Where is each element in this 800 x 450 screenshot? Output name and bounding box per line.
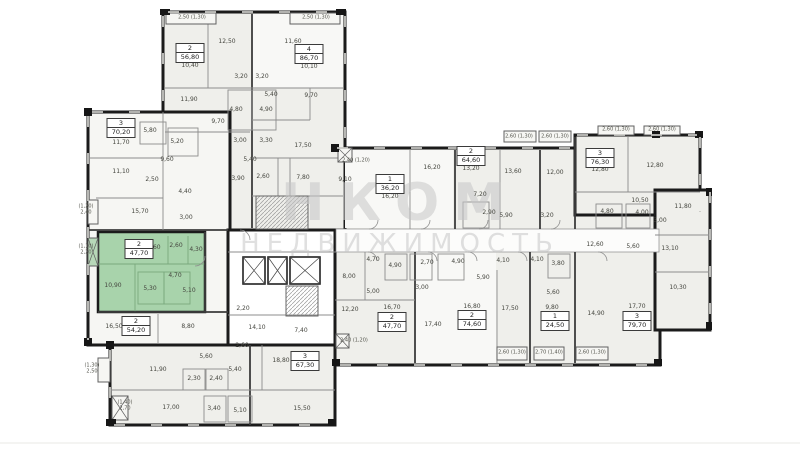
apartment-label[interactable]: 376,30 — [586, 148, 615, 168]
room-area-label: 4,90 — [451, 259, 464, 265]
room-area-label: 5,00 — [366, 289, 379, 295]
room-area-label: 11,90 — [149, 367, 166, 373]
apartment-rooms-count: 2 — [126, 240, 153, 249]
apartment-label[interactable]: 136,20 — [376, 174, 405, 194]
balcony-area-label: (1,20) 2,40 — [78, 205, 93, 216]
apartment-rooms-count: 1 — [377, 175, 404, 184]
room-area-label: 4,90 — [259, 107, 272, 113]
room-area-label: 5,90 — [499, 213, 512, 219]
room-area-label: 5,40 — [264, 92, 277, 98]
room-area-label: 10,10 — [300, 64, 317, 70]
room-area-label: 16,20 — [381, 194, 398, 200]
room-area-label: 5,30 — [143, 286, 156, 292]
room-area-label: 4,90 — [388, 263, 401, 269]
room-area-label: 13,60 — [504, 169, 521, 175]
balcony-area-label: (1,30) 2,50 — [84, 364, 99, 375]
room-area-label: 5,60 — [626, 244, 639, 250]
room-area-label: 2,90 — [482, 210, 495, 216]
room-area-label: 9,60 — [160, 157, 173, 163]
room-area-label: 10,90 — [104, 283, 121, 289]
floor-plan: НКОМ НЕДВИЖИМОСТЬ 12,5011,6010,4010,103,… — [0, 0, 800, 450]
apartment-label[interactable]: 367,30 — [291, 351, 320, 371]
apartment-total-area: 54,20 — [123, 326, 150, 335]
room-area-label: 15,50 — [293, 406, 310, 412]
room-area-label: 11,80 — [674, 204, 691, 210]
apartment-label[interactable]: 264,60 — [457, 146, 486, 166]
room-area-label: 3,00 — [179, 215, 192, 221]
balcony-area-label: 2,60 (1,30) — [498, 350, 526, 356]
balcony-area-label: 2,70 (1,40) — [535, 350, 563, 356]
apartment-total-area: 67,30 — [292, 361, 319, 370]
room-area-label: 8,80 — [181, 324, 194, 330]
room-area-label: 7,20 — [473, 192, 486, 198]
room-area-label: 12,60 — [586, 242, 603, 248]
room-area-label: 12,50 — [218, 39, 235, 45]
room-area-label: 5,60 — [199, 354, 212, 360]
balcony-area-label: 2,50 (1,30) — [178, 15, 206, 21]
apartment-label[interactable]: 274,60 — [458, 310, 487, 330]
apartment-total-area: 24,50 — [542, 321, 569, 330]
apartment-rooms-count: 3 — [108, 119, 135, 128]
apartment-total-area: 36,20 — [377, 184, 404, 193]
apartment-rooms-count: 2 — [458, 147, 485, 156]
apartment-total-area: 47,70 — [126, 249, 153, 258]
room-area-label: 2,60 — [169, 243, 182, 249]
room-area-label: 2,40 — [209, 376, 222, 382]
room-area-label: 15,70 — [131, 209, 148, 215]
room-area-label: 3,00 — [653, 218, 666, 224]
room-area-label: 17,00 — [162, 405, 179, 411]
apartment-total-area: 74,60 — [459, 320, 486, 329]
room-area-label: 2,60 — [235, 343, 248, 349]
room-area-label: 5,20 — [170, 139, 183, 145]
room-area-label: 2,50 — [145, 177, 158, 183]
room-area-label: 4,10 — [496, 258, 509, 264]
apartment-total-area: 56,80 — [177, 53, 204, 62]
room-area-label: 17,50 — [501, 306, 518, 312]
balcony-area-label: 2,50 (1,30) — [302, 15, 330, 21]
apartment-label[interactable]: 254,20 — [122, 316, 151, 336]
room-area-label: 2,20 — [236, 306, 249, 312]
apartment-label[interactable]: 247,70 — [378, 312, 407, 332]
apartment-total-area: 76,30 — [587, 158, 614, 167]
room-area-label: 2,70 — [420, 260, 433, 266]
room-area-label: 10,30 — [669, 285, 686, 291]
balcony-area-label: 2,60 (1,30) — [541, 134, 569, 140]
room-area-label: 11,10 — [112, 169, 129, 175]
balcony-area-label: 2,60 (1,30) — [505, 134, 533, 140]
apartment-label[interactable]: 379,70 — [623, 311, 652, 331]
room-area-label: 5,40 — [228, 367, 241, 373]
balcony-area-label: 2,40 (1,20) — [340, 338, 368, 344]
labels-layer: 12,5011,6010,4010,103,203,2011,904,804,9… — [0, 0, 800, 450]
room-area-label: 4,80 — [229, 107, 242, 113]
room-area-label: 4,70 — [168, 273, 181, 279]
apartment-label[interactable]: 247,70 — [125, 239, 154, 259]
apartment-rooms-count: 2 — [177, 44, 204, 53]
room-area-label: 10,40 — [181, 63, 198, 69]
balcony-area-label: 2,60 (1,30) — [578, 350, 606, 356]
apartment-rooms-count: 2 — [379, 313, 406, 322]
room-area-label: 4,00 — [635, 210, 648, 216]
room-area-label: 2,60 — [256, 174, 269, 180]
room-area-label: 7,80 — [296, 175, 309, 181]
apartment-total-area: 47,70 — [379, 322, 406, 331]
room-area-label: 16,50 — [105, 324, 122, 330]
room-area-label: 4,30 — [189, 247, 202, 253]
room-area-label: 12,00 — [546, 170, 563, 176]
apartment-total-area: 86,70 — [296, 54, 323, 63]
room-area-label: 2,30 — [187, 376, 200, 382]
room-area-label: 16,20 — [423, 165, 440, 171]
room-area-label: 9,70 — [211, 119, 224, 125]
room-area-label: 9,10 — [338, 177, 351, 183]
apartment-label[interactable]: 124,50 — [541, 311, 570, 331]
room-area-label: 5,10 — [233, 408, 246, 414]
room-area-label: 11,90 — [180, 97, 197, 103]
apartment-rooms-count: 4 — [296, 45, 323, 54]
room-area-label: 5,90 — [476, 275, 489, 281]
room-area-label: 4,10 — [530, 257, 543, 263]
room-area-label: 4,70 — [366, 257, 379, 263]
apartment-rooms-count: 3 — [292, 352, 319, 361]
room-area-label: 14,10 — [248, 325, 265, 331]
room-area-label: 3,40 — [207, 406, 220, 412]
room-area-label: 9,70 — [304, 93, 317, 99]
balcony-area-label: 2,60 (1,30) — [648, 127, 676, 133]
room-area-label: 3,20 — [255, 74, 268, 80]
room-area-label: 7,40 — [294, 328, 307, 334]
room-area-label: 4,80 — [600, 209, 613, 215]
room-area-label: 5,80 — [143, 128, 156, 134]
room-area-label: 3,30 — [259, 138, 272, 144]
balcony-area-label: 2,60 (1,30) — [602, 127, 630, 133]
apartment-total-area: 70,20 — [108, 128, 135, 137]
room-area-label: 18,80 — [272, 358, 289, 364]
room-area-label: 13,10 — [661, 246, 678, 252]
room-area-label: 16,70 — [383, 305, 400, 311]
balcony-area-label: 2,40 (1,20) — [342, 158, 370, 164]
room-area-label: 11,70 — [112, 140, 129, 146]
room-area-label: 8,00 — [342, 274, 355, 280]
room-area-label: 17,50 — [294, 143, 311, 149]
apartment-rooms-count: 3 — [587, 149, 614, 158]
room-area-label: 4,40 — [178, 189, 191, 195]
room-area-label: 5,60 — [546, 290, 559, 296]
room-area-label: 3,00 — [415, 285, 428, 291]
apartment-rooms-count: 2 — [459, 311, 486, 320]
apartment-total-area: 64,60 — [458, 156, 485, 165]
room-area-label: 3,80 — [551, 261, 564, 267]
apartment-total-area: 79,70 — [624, 321, 651, 330]
apartment-label[interactable]: 486,70 — [295, 44, 324, 64]
room-area-label: 13,20 — [462, 166, 479, 172]
room-area-label: 14,90 — [587, 311, 604, 317]
room-area-label: 17,70 — [628, 304, 645, 310]
room-area-label: 5,10 — [182, 288, 195, 294]
room-area-label: 10,50 — [631, 198, 648, 204]
room-area-label: 3,20 — [234, 74, 247, 80]
room-area-label: 12,20 — [341, 307, 358, 313]
room-area-label: 12,80 — [646, 163, 663, 169]
apartment-label[interactable]: 256,80 — [176, 43, 205, 63]
apartment-rooms-count: 3 — [624, 312, 651, 321]
apartment-rooms-count: 1 — [542, 312, 569, 321]
apartment-label[interactable]: 370,20 — [107, 118, 136, 138]
room-area-label: 3,20 — [540, 213, 553, 219]
room-area-label: 3,00 — [233, 138, 246, 144]
apartment-rooms-count: 2 — [123, 317, 150, 326]
balcony-area-label: (1,40) 2,70 — [117, 401, 132, 412]
room-area-label: 3,90 — [231, 176, 244, 182]
room-area-label: 17,40 — [424, 322, 441, 328]
balcony-area-label: (1,10) 2,20 — [78, 245, 93, 256]
room-area-label: 5,40 — [243, 157, 256, 163]
